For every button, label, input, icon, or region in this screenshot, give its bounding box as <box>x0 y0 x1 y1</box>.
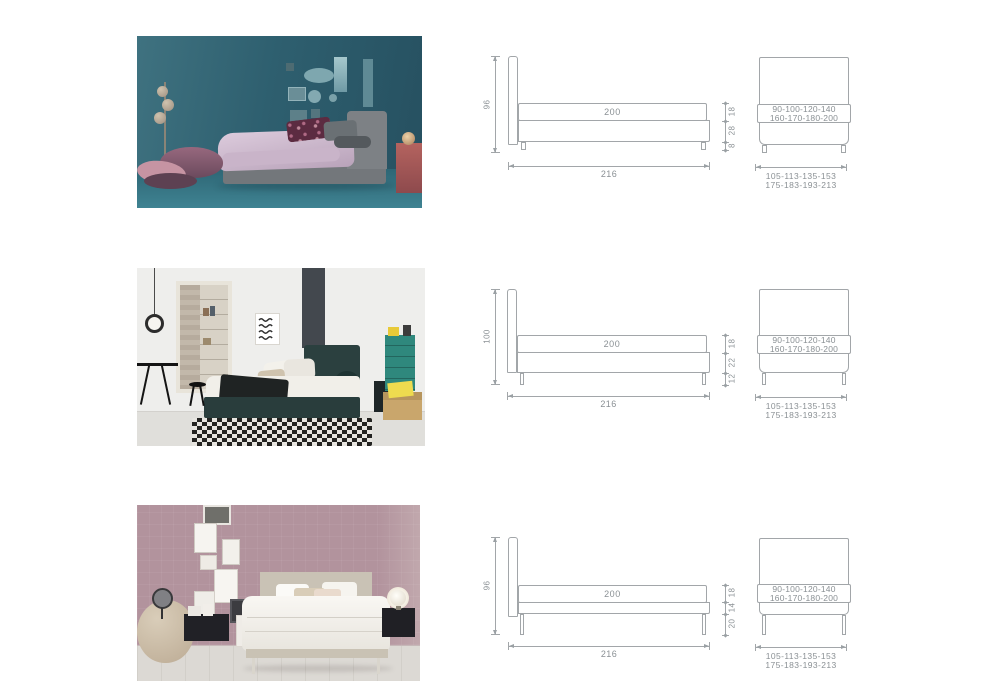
overall-widths-line2: 175-183-193-213 <box>746 410 856 420</box>
height-dim-line <box>495 56 496 153</box>
bed-leg-outline <box>520 373 524 385</box>
width-dim-line <box>755 397 847 398</box>
mattress-outline: 90-100-120-140 160-170-180-200 <box>757 584 851 603</box>
dim-arrow <box>509 164 514 168</box>
bed-leg-outline <box>762 373 766 385</box>
stack-dim-line <box>725 585 726 635</box>
headboard-outline <box>508 537 518 617</box>
pendant-lamp <box>145 314 164 333</box>
dresser-toy <box>403 325 411 336</box>
picture-frame <box>214 569 238 603</box>
length-dim-line <box>507 396 710 397</box>
headboard-height-label: 96 <box>483 90 492 120</box>
wave-art <box>257 315 276 341</box>
bed-leg <box>252 658 255 674</box>
floor-lamp-globe <box>157 86 168 97</box>
patterned-rug <box>192 418 372 446</box>
floor-lamp-globe <box>154 112 166 124</box>
bed-leg-outline <box>842 373 846 385</box>
picture-frame <box>222 539 240 565</box>
headboard-outline <box>507 289 517 373</box>
duvet-fold <box>245 631 387 632</box>
bed-leg-outline <box>842 615 846 635</box>
mattress-outline: 200 <box>518 585 707 603</box>
floor-lamp-globe <box>162 99 174 111</box>
side-view-diagram-1: 96 200 216 18 28 8 <box>480 50 740 182</box>
dim-arrow <box>704 644 709 648</box>
dim-arrow <box>493 380 497 385</box>
shelf-book <box>203 308 209 316</box>
dim-arrow <box>841 645 846 649</box>
stack-dim-line <box>725 335 726 385</box>
bed-leg-outline <box>520 614 524 635</box>
mattress-outline: 200 <box>517 335 707 353</box>
length-dim-line <box>508 646 710 647</box>
leg-height-label: 20 <box>728 609 737 639</box>
fan-stand <box>161 608 163 619</box>
shelf-book <box>203 338 211 345</box>
dim-arrow <box>509 644 514 648</box>
dim-arrow <box>508 394 513 398</box>
bed-leg-outline <box>762 615 766 635</box>
wall-mirror-round <box>308 90 321 103</box>
dresser-toy <box>388 327 399 336</box>
length-dim-line <box>508 166 710 167</box>
frame-outline <box>518 120 710 142</box>
duvet <box>242 596 390 651</box>
bed-leg-outline <box>762 145 767 153</box>
wall-mirror-tall <box>363 59 373 107</box>
room-photo-2 <box>137 268 425 446</box>
frame-outline <box>518 602 710 614</box>
table-lamp-base <box>396 606 401 610</box>
dim-tick <box>846 164 847 171</box>
picture-frame <box>203 505 231 525</box>
headboard-outline <box>759 289 849 373</box>
bed-leg-outline <box>841 145 846 153</box>
overall-length-label: 216 <box>508 169 710 179</box>
mattress-outline: 90-100-120-140 160-170-180-200 <box>757 335 851 354</box>
dim-arrow <box>493 537 497 542</box>
table-lamp-globe <box>390 590 406 606</box>
width-dim-line <box>755 647 847 648</box>
dim-arrow <box>493 289 497 294</box>
dark-wall-panel <box>302 268 325 348</box>
mattress-length-label: 200 <box>604 107 621 117</box>
nightstand-right <box>382 608 415 637</box>
nightstand-decor <box>188 606 201 616</box>
mattress-widths-line2: 160-170-180-200 <box>770 594 838 603</box>
pendant-cord <box>154 268 155 318</box>
dim-arrow <box>493 630 497 635</box>
dim-arrow <box>841 395 846 399</box>
dim-arrow <box>756 395 761 399</box>
fan-head <box>152 588 173 609</box>
yellow-paper <box>387 381 413 399</box>
picture-frame <box>194 523 217 553</box>
nightstand-decor <box>203 604 213 616</box>
side-table <box>396 143 422 193</box>
shelf-book <box>210 306 215 316</box>
bed-shadow <box>243 665 393 672</box>
dim-tick <box>846 394 847 401</box>
headboard-outline <box>759 538 849 615</box>
bed-base <box>204 397 360 418</box>
dim-arrow <box>756 165 761 169</box>
mattress-outline: 90-100-120-140 160-170-180-200 <box>757 104 851 123</box>
bed-base <box>246 649 388 658</box>
bed-leg-outline <box>702 373 706 385</box>
table-lamp <box>402 132 415 145</box>
dim-arrow <box>841 165 846 169</box>
dim-arrow <box>704 164 709 168</box>
wall-frame <box>288 87 306 101</box>
front-view-diagram-3: 90-100-120-140 160-170-180-200 105-113-1… <box>740 531 925 673</box>
wall-mirror-tall <box>334 57 347 92</box>
overall-length-label: 216 <box>507 399 710 409</box>
leg-height-label: 12 <box>728 364 737 394</box>
mattress-outline: 200 <box>518 103 707 121</box>
trestle-table-top <box>137 363 178 366</box>
floor-cushion-dark <box>144 173 197 189</box>
mattress-widths-line2: 160-170-180-200 <box>770 114 838 123</box>
height-dim-line <box>495 289 496 385</box>
dim-arrow <box>756 645 761 649</box>
mattress-length-label: 200 <box>604 339 621 349</box>
front-view-diagram-1: 90-100-120-140 160-170-180-200 105-113-1… <box>740 50 925 192</box>
dim-arrow <box>493 56 497 61</box>
leg-height-label: 8 <box>728 131 737 161</box>
overall-length-label: 216 <box>508 649 710 659</box>
duvet-fold <box>247 617 385 618</box>
bed-leg-outline <box>702 614 706 635</box>
bed-spec-sheet: 96 200 216 18 28 8 90-100-120-140 160-17… <box>0 0 1000 700</box>
nightstand-left <box>184 614 229 641</box>
room-photo-1 <box>137 36 422 208</box>
side-view-diagram-2: 100 200 216 18 22 12 <box>480 283 740 413</box>
bed-leg-outline <box>521 142 526 150</box>
picture-frame <box>200 555 217 570</box>
headboard-height-label: 100 <box>483 322 492 352</box>
bed-leg-outline <box>701 142 706 150</box>
bed-leg <box>377 658 380 674</box>
side-view-diagram-3: 96 200 216 18 14 20 <box>480 531 740 665</box>
front-view-diagram-2: 90-100-120-140 160-170-180-200 105-113-1… <box>740 283 925 423</box>
room-photo-3 <box>137 505 420 681</box>
headboard-outline <box>759 57 849 145</box>
mattress-widths-line2: 160-170-180-200 <box>770 345 838 354</box>
dim-arrow <box>493 148 497 153</box>
width-dim-line <box>755 167 847 168</box>
frame-outline <box>517 352 710 373</box>
headboard-outline <box>508 56 518 145</box>
wall-frame <box>286 63 294 71</box>
overall-widths-line2: 175-183-193-213 <box>746 660 856 670</box>
wall-mirror-round <box>329 94 337 102</box>
headboard-height-label: 96 <box>483 571 492 601</box>
alcove-brick-wall <box>180 285 200 389</box>
height-dim-line <box>495 537 496 635</box>
dim-arrow <box>704 394 709 398</box>
wall-mirror-oval <box>304 68 334 83</box>
bolster-pillow <box>334 136 371 148</box>
dim-tick <box>846 644 847 651</box>
mattress-length-label: 200 <box>604 589 621 599</box>
overall-widths-line2: 175-183-193-213 <box>746 180 856 190</box>
wave-art-frame <box>255 313 280 345</box>
